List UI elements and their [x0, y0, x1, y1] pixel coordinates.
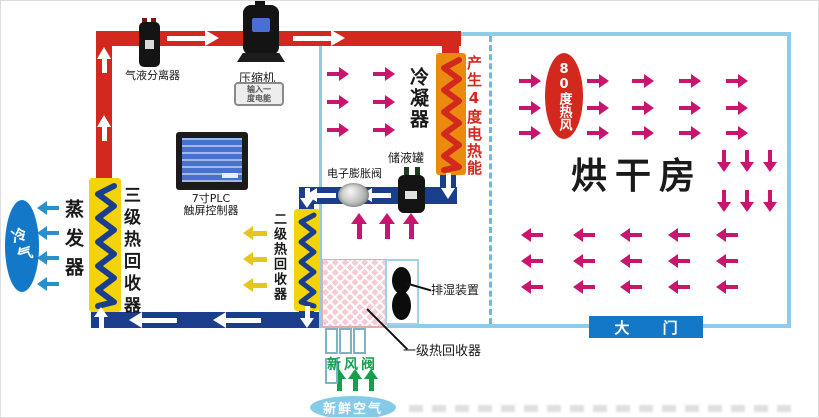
hot-air-down-icon	[740, 150, 754, 172]
cold-air-left-icon	[37, 277, 59, 291]
hot-air-right-icon	[632, 126, 654, 140]
return-air-left-icon	[620, 228, 642, 242]
return-air-left-icon	[716, 280, 738, 294]
hot-air-right-icon	[679, 101, 701, 115]
hot-wind-oval: 80度热风	[545, 53, 583, 139]
fresh-air-oval: 新鲜空气	[310, 396, 396, 418]
hot-wind-label: 80度热风	[558, 62, 571, 131]
pipe-down-from-coil2-icon	[300, 306, 314, 328]
cold-air-left-icon	[37, 251, 59, 265]
hot-air-down-icon	[717, 190, 731, 212]
hot-air-right-icon	[679, 74, 701, 88]
hot-air-right-icon	[519, 74, 541, 88]
fresh-air-label: 新鲜空气	[323, 398, 383, 417]
condenser-air-right-icon	[327, 123, 349, 137]
louver-icon	[339, 328, 352, 354]
stage3-recovery-label: 三级热回收器	[121, 186, 138, 318]
stage2-heat-left-icon	[243, 278, 267, 292]
return-air-left-icon	[521, 228, 543, 242]
drying-room-label: 烘干房	[571, 147, 703, 199]
compressor-power-stamp: 输入一 度电能	[234, 82, 284, 106]
condenser-air-right-icon	[373, 123, 395, 137]
evaporator-label: 蒸发器	[63, 199, 82, 286]
hot-air-down-icon	[717, 150, 731, 172]
return-air-left-icon	[573, 254, 595, 268]
plc-screen-button-icon	[222, 173, 238, 178]
hot-air-right-icon	[632, 101, 654, 115]
compressor-nameplate-icon	[252, 18, 270, 32]
hot-air-right-icon	[726, 74, 748, 88]
watermark	[409, 405, 791, 412]
return-air-left-icon	[716, 254, 738, 268]
hot-air-right-icon	[632, 74, 654, 88]
door-label: 大 门	[589, 316, 703, 338]
hot-air-right-icon	[726, 126, 748, 140]
pipe-up-into-evaporator-icon	[94, 307, 108, 329]
return-air-left-icon	[668, 280, 690, 294]
hot-air-down-icon	[763, 150, 777, 172]
condenser-air-right-icon	[373, 95, 395, 109]
expansion-valve-icon	[338, 183, 369, 207]
return-air-left-icon	[573, 228, 595, 242]
hot-air-right-icon	[679, 126, 701, 140]
tank-label-plate-icon	[405, 191, 417, 199]
dehumidifier-label: 排湿装置	[431, 281, 479, 298]
hot-air-right-icon	[726, 101, 748, 115]
louver-icon	[325, 328, 338, 354]
stamp-line2: 度电能	[236, 94, 282, 103]
plc-label: 7寸PLC 触屏控制器	[161, 193, 261, 217]
louver-icon	[353, 328, 366, 354]
stage2-heat-left-icon	[243, 226, 267, 240]
condenser-air-right-icon	[327, 95, 349, 109]
compressor-base-icon	[237, 53, 285, 62]
separator-label-plate-icon	[145, 40, 154, 49]
plc-controller-icon	[176, 132, 248, 190]
cold-air-left-icon	[37, 201, 59, 215]
stage1-recovery-label: 一级热回收器	[403, 340, 481, 359]
return-air-left-icon	[620, 254, 642, 268]
cold-air-oval: 冷气	[5, 200, 39, 292]
pipe-into-condenser-down-icon	[441, 173, 455, 199]
stage2-recovery-label: 二级热回收器	[272, 212, 285, 302]
tank-label: 储液罐	[388, 149, 424, 166]
hot-air-right-icon	[519, 126, 541, 140]
rising-hot-air-up-icon	[403, 213, 419, 239]
hot-air-right-icon	[587, 126, 609, 140]
hot-air-right-icon	[587, 74, 609, 88]
hot-air-down-icon	[740, 190, 754, 212]
return-air-left-icon	[668, 254, 690, 268]
plc-screen-icon	[182, 138, 242, 182]
plc-label-line2: 触屏控制器	[161, 205, 261, 217]
hot-air-right-icon	[519, 101, 541, 115]
return-air-left-icon	[573, 280, 595, 294]
pipe-into-coil2-down-icon	[300, 188, 314, 208]
hot-air-down-icon	[763, 190, 777, 212]
condenser-air-right-icon	[373, 67, 395, 81]
return-air-left-icon	[521, 280, 543, 294]
return-air-left-icon	[620, 280, 642, 294]
rising-hot-air-up-icon	[351, 213, 367, 239]
hot-air-right-icon	[587, 101, 609, 115]
expansion-valve-label: 电子膨胀阀	[327, 165, 382, 181]
fresh-air-valve-label: 新风阀	[327, 354, 378, 374]
separator-label: 气液分离器	[125, 67, 180, 83]
electric-heat-label: 产生4度电热能	[466, 55, 481, 177]
pipe-hot-flow-right-icon	[293, 30, 345, 46]
stamp-line1: 输入一	[236, 85, 282, 94]
rising-hot-air-up-icon	[379, 213, 395, 239]
cold-air-left-icon	[37, 226, 59, 240]
condenser-label: 冷凝器	[408, 67, 427, 130]
pipe-hot-flow-up-icon	[97, 115, 111, 141]
cold-air-label: 冷气	[6, 225, 38, 268]
condenser-air-right-icon	[327, 67, 349, 81]
return-air-left-icon	[716, 228, 738, 242]
fresh-air-valve-icon	[325, 328, 379, 354]
return-air-left-icon	[668, 228, 690, 242]
pipe-return-flow-left-icon	[213, 312, 261, 328]
stage2-heat-left-icon	[243, 252, 267, 266]
pipe-hot-flow-up-icon	[97, 47, 111, 73]
return-air-left-icon	[521, 254, 543, 268]
heat-pump-dryer-diagram: 气液分离器 压缩机 输入一 度电能 7寸PLC 触屏控制器 冷凝器 产生4度电热…	[0, 0, 819, 418]
pipe-hot-flow-right-icon	[167, 30, 219, 46]
